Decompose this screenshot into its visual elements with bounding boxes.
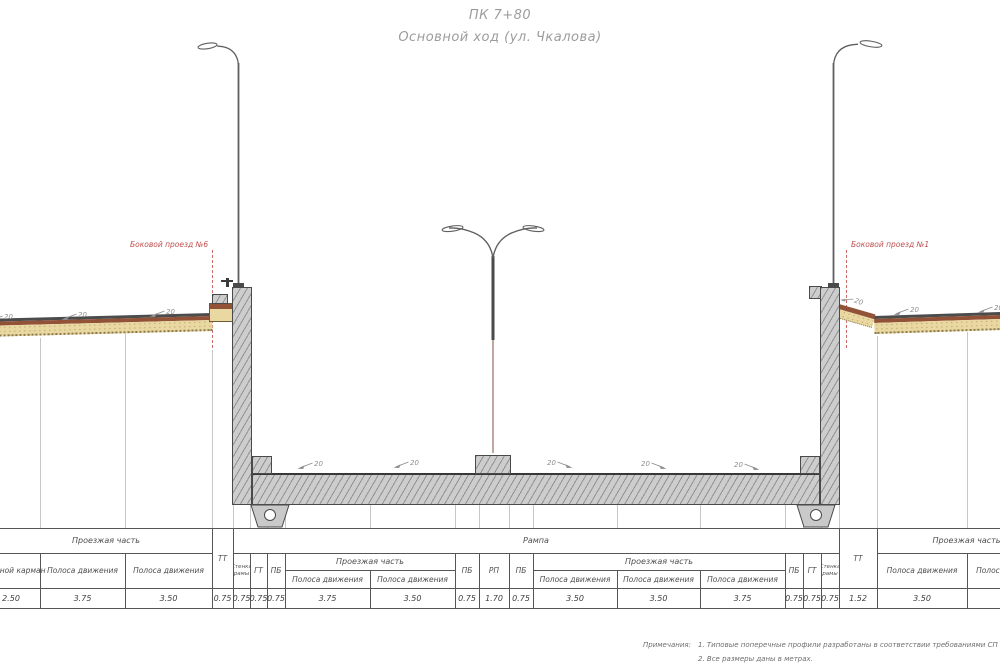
table-col-value-8: 3.50 — [370, 588, 455, 608]
slope-arrow-right-icon — [744, 463, 761, 471]
slope-value: 20 — [910, 307, 919, 314]
table-col-value-10: 1.70 — [479, 588, 509, 608]
slope-value: 20 — [314, 461, 323, 468]
table-col-label-15: ПБ — [785, 553, 803, 588]
table-col-label-10: РП — [479, 553, 509, 588]
table-col-label-16: ГТ — [803, 553, 821, 588]
cross-section-sheet: ПК 7+80 Основной ход (ул. Чкалова) Боков… — [0, 0, 1000, 667]
table-col-value-12: 3.50 — [533, 588, 617, 608]
table-col-value-6: 0.75 — [267, 588, 285, 608]
table-col-label-11: ПБ — [509, 553, 533, 588]
table-col-label-12: Полоса движения — [533, 570, 617, 588]
slope-value: 20 — [734, 462, 743, 469]
slope-arrow-left-icon — [296, 462, 313, 470]
table-col-label-5: ГТ — [250, 553, 267, 588]
slope-value: 20 — [410, 460, 419, 467]
table-col-value-18: 1.52 — [839, 588, 877, 608]
table-col-value-11: 0.75 — [509, 588, 533, 608]
slope-arrow-left-icon — [392, 461, 409, 469]
table-col-label-8: Полоса движения — [370, 570, 455, 588]
slope-mark: 20 — [0, 314, 13, 323]
slope-value: 20 — [166, 309, 175, 316]
table-col-label-1: Полоса движения — [40, 553, 125, 588]
table-col-value-17: 0.75 — [821, 588, 839, 608]
table-col-label-20: Полоса движения — [967, 553, 1000, 588]
slope-arrow-left-icon — [892, 308, 909, 316]
table-col-value-2: 3.50 — [125, 588, 212, 608]
table-group-right: Проезжая часть — [877, 528, 1000, 553]
slope-arrow-left-icon — [148, 310, 165, 318]
table-col-label-18: ТТ — [839, 528, 877, 588]
slope-value: 20 — [547, 460, 556, 467]
table-col-value-1: 3.75 — [40, 588, 125, 608]
table-col-value-16: 0.75 — [803, 588, 821, 608]
slope-arrow-left-icon — [976, 306, 993, 314]
right-pole-luminaire — [860, 40, 883, 49]
right-pole-base-plate — [828, 283, 839, 287]
table-col-value-9: 0.75 — [455, 588, 479, 608]
table-col-value-5: 0.75 — [250, 588, 267, 608]
table-col-value-15: 0.75 — [785, 588, 803, 608]
center-pole-arm-right — [493, 228, 537, 258]
notes-heading: Примечания: — [643, 641, 691, 649]
slope-arrow-right-icon — [651, 462, 668, 470]
table-group-ramp: Рампа — [233, 528, 839, 553]
table-col-value-13: 3.50 — [617, 588, 700, 608]
table-col-value-3: 0.75 — [212, 588, 233, 608]
slope-mark: 20 — [734, 462, 761, 471]
slope-mark: 20 — [296, 461, 323, 470]
table-col-label-2: Полоса движения — [125, 553, 212, 588]
table-col-value-14: 3.75 — [700, 588, 785, 608]
slope-value: 20 — [78, 312, 87, 319]
left-pole-base-plate — [233, 283, 244, 287]
table-col-label-9: ПБ — [455, 553, 479, 588]
slope-mark: 20 — [641, 461, 668, 470]
table-col-label-7: Полоса движения — [285, 570, 370, 588]
slope-mark: 20 — [148, 309, 175, 318]
slope-arrow-left-icon — [60, 313, 77, 321]
left-pole-luminaire — [198, 42, 218, 50]
slope-value: 20 — [4, 314, 13, 321]
note-2: 2. Все размеры даны в метрах. — [698, 655, 813, 663]
table-col-value-19: 3.50 — [877, 588, 967, 608]
table-subgroup-right: Проезжая часть — [533, 553, 785, 570]
table-col-value-7: 3.75 — [285, 588, 370, 608]
slope-mark: 20 — [892, 307, 919, 316]
table-col-label-14: Полоса движения — [700, 570, 785, 588]
slope-arrow-left-icon — [0, 315, 3, 323]
slope-mark: 20 — [392, 460, 419, 469]
slope-value: 20 — [641, 461, 650, 468]
right-footing-hole — [811, 510, 822, 521]
table-col-label-13: Полоса движения — [617, 570, 700, 588]
right-pole-arm — [834, 44, 859, 65]
slope-mark: 20 — [60, 312, 87, 321]
left-pole-arm — [217, 46, 239, 65]
table-col-value-4: 0.75 — [233, 588, 250, 608]
slope-mark: 20 — [976, 305, 1000, 314]
note-1: 1. Типовые поперечные профили разработан… — [698, 641, 1000, 649]
table-col-label-17: Стенка рамы — [821, 553, 839, 588]
table-col-label-19: Полоса движения — [877, 553, 967, 588]
slope-mark: 20 — [547, 460, 574, 469]
center-pole-arm-left — [449, 228, 493, 258]
slope-arrow-right-icon — [557, 461, 574, 469]
table-col-value-20 — [967, 588, 1000, 608]
left-footing-hole — [265, 510, 276, 521]
slope-value: 20 — [994, 305, 1000, 312]
table-subgroup-left: Проезжая часть — [285, 553, 455, 570]
table-line — [0, 608, 1000, 609]
table-col-label-4: Стенка рамы — [233, 553, 250, 588]
table-col-label-6: ПБ — [267, 553, 285, 588]
table-col-label-3: ТТ — [212, 528, 233, 588]
table-group-left: Проезжая часть — [0, 528, 212, 553]
